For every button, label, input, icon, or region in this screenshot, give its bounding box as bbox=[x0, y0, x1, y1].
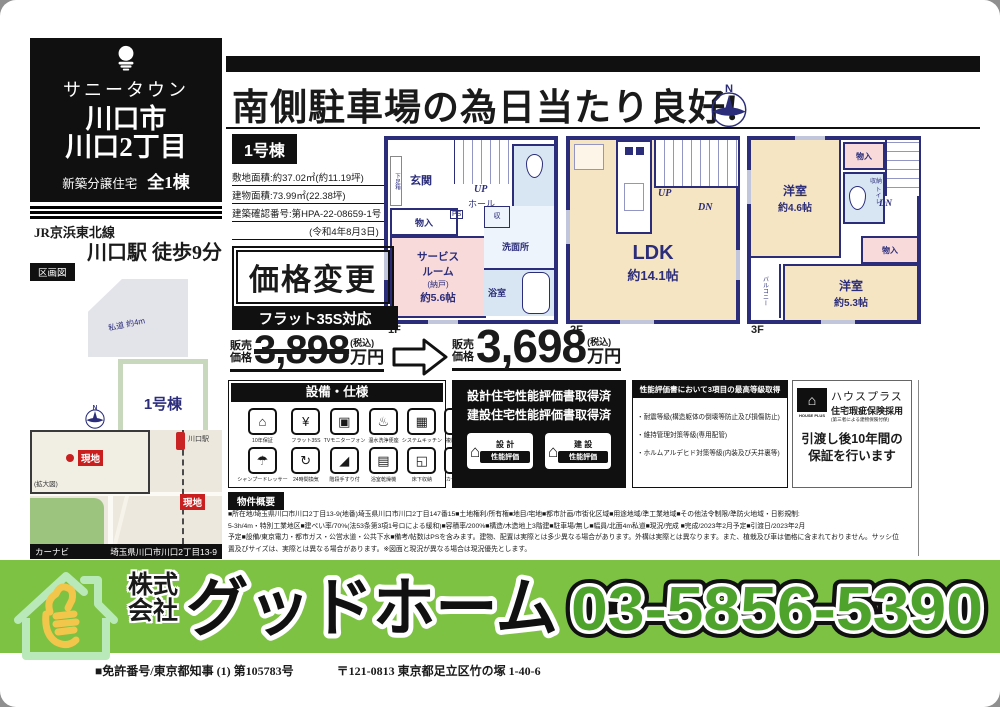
station-access: 川口駅 徒歩9分 bbox=[30, 236, 222, 265]
floorplan-1f: 下足箱 玄関 UP ホール PS 物入 サービス ルーム (納戸) 約5.6帖 … bbox=[384, 136, 558, 324]
shoe-cabinet: 下足箱 bbox=[390, 156, 402, 206]
total-units: 全1棟 bbox=[147, 168, 190, 193]
plot-diagram: 私道 約4m 1号棟 N bbox=[30, 263, 222, 430]
plot-compass-icon: N bbox=[82, 403, 108, 433]
private-road-shape: 私道 約4m bbox=[88, 279, 188, 357]
map-station-label: 川口駅 bbox=[188, 434, 209, 444]
real-estate-flyer: サニータウン 川口市 川口2丁目 新築分譲住宅 全1棟 JR京浜東北線 川口駅 … bbox=[0, 0, 1000, 707]
site-marker: 現地 bbox=[78, 450, 103, 466]
svg-text:グッドホーム: グッドホーム bbox=[186, 572, 558, 644]
bathroom: 浴室 bbox=[484, 268, 554, 316]
toilet-icon bbox=[849, 186, 866, 210]
new-price-amount: 3,698 bbox=[476, 327, 586, 366]
washlet-icon: ♨ bbox=[369, 408, 398, 435]
flat35s-badge: フラット35S対応 bbox=[232, 306, 398, 330]
stairs bbox=[454, 140, 511, 184]
equip-10yr-warranty: ⌂10年保証 bbox=[235, 408, 290, 444]
storage-label: 収納 bbox=[870, 176, 882, 185]
lamp-icon bbox=[112, 45, 140, 71]
grade-maintenance: ・維持管理対策等級(専用配管) bbox=[637, 429, 783, 439]
stairs-down-label: DN bbox=[698, 202, 712, 213]
equip-bath-dryer: ▤浴室乾燥機 bbox=[367, 447, 400, 483]
flat35s-icon: ¥ bbox=[291, 408, 320, 435]
carnavi-address: 埼玉県川口市川口2丁目13-9 bbox=[110, 546, 217, 558]
stove-burner-icon bbox=[636, 147, 644, 155]
washroom: 収 洗面所 bbox=[484, 206, 554, 268]
company-address: 〒121-0813 東京都足立区竹の塚 1-40-6 bbox=[337, 664, 541, 678]
license-number: ■免許番号/東京都知事 (1) 第105783号 bbox=[95, 664, 294, 678]
grade-formaldehyde: ・ホルムアルデヒド対策等級(内装及び天井裏等) bbox=[637, 447, 783, 457]
phone-number: 03-5856-5390 03-5856-5390 bbox=[562, 564, 992, 650]
private-road-label: 私道 約4m bbox=[107, 315, 146, 334]
stairs-up-label: UP bbox=[474, 184, 487, 195]
closet-label: 物入 bbox=[390, 208, 458, 236]
equip-tv-monitor-phone: ▣TVモニターフォン bbox=[322, 408, 367, 444]
old-price: 販売価格 3,898 (税込) 万円 bbox=[230, 333, 384, 372]
equip-washlet: ♨温水洗浄便座 bbox=[367, 408, 400, 444]
ventilation-icon: ↻ bbox=[291, 447, 320, 474]
license-row: ■免許番号/東京都知事 (1) 第105783号 〒121-0813 東京都足立… bbox=[95, 662, 541, 679]
design-cert-line: 設計住宅性能評価書取得済 bbox=[452, 387, 626, 404]
vertical-divider bbox=[918, 380, 919, 556]
entrance-label: 玄関 bbox=[410, 172, 432, 188]
equip-system-kitchen: ▦システムキッチン bbox=[400, 408, 444, 444]
map-inset-label: (拡大図) bbox=[34, 478, 58, 488]
storage-label: 収 bbox=[484, 206, 510, 228]
house-icon: ⌂ bbox=[797, 388, 827, 412]
ldk-label: LDK bbox=[570, 242, 736, 265]
warranty-icon: ⌂ bbox=[248, 408, 277, 435]
certification-box: 設計住宅性能評価書取得済 建設住宅性能評価書取得済 ⌂ 設 計 性能評価 ⌂ 建… bbox=[452, 380, 626, 488]
brand-box: サニータウン 川口市 川口2丁目 新築分譲住宅 全1棟 bbox=[30, 38, 222, 202]
stairs bbox=[654, 140, 738, 188]
house-icon: ⌂ bbox=[470, 443, 480, 460]
floorplan-2f: UP DN LDK 約14.1帖 bbox=[566, 136, 740, 324]
new-price: 販売価格 3,698 (税込) 万円 bbox=[452, 327, 621, 371]
top-grade-title: 性能評価書において3項目の最高等級取得 bbox=[633, 381, 787, 398]
map-station-shape bbox=[176, 432, 185, 450]
kitchen-icon: ▦ bbox=[407, 408, 436, 435]
tv-monitor-icon: ▣ bbox=[330, 408, 359, 435]
stove-burner-icon bbox=[625, 147, 633, 155]
equipment-box: 設備・仕様 ⌂10年保証 ¥フラット35S ▣TVモニターフォン ♨温水洗浄便座… bbox=[228, 380, 446, 488]
construction-cert-line: 建設住宅性能評価書取得済 bbox=[452, 406, 626, 423]
map: 川口駅 現地 現地 (拡大図) bbox=[30, 430, 222, 544]
project-name: サニータウン bbox=[30, 76, 222, 102]
ldk-room: LDK 約14.1帖 bbox=[570, 242, 736, 284]
floorplan-3f: 洋室 約4.6帖 物入 収納 トイレ DN 物入 洋室 約5.3帖 バルコニー bbox=[747, 136, 921, 324]
sink-icon bbox=[624, 183, 644, 211]
washroom-label: 洗面所 bbox=[502, 240, 529, 253]
compass-n: N bbox=[725, 83, 733, 95]
brand-city: 川口市 bbox=[30, 104, 222, 134]
site-marker: 現地 bbox=[180, 494, 205, 510]
svg-text:03-5856-5390: 03-5856-5390 bbox=[571, 575, 983, 644]
closet-label: 物入 bbox=[861, 236, 919, 264]
stairs-icon: ◢ bbox=[330, 447, 359, 474]
shower-icon: ☂ bbox=[248, 447, 277, 474]
balcony: バルコニー bbox=[751, 264, 781, 318]
service-room: サービス ルーム (納戸) 約5.6帖 bbox=[390, 236, 486, 318]
site-dot bbox=[66, 454, 74, 462]
map-inset: 現地 (拡大図) bbox=[30, 430, 150, 494]
construction-cert-badge: ⌂ 建 設 性能評価 bbox=[545, 433, 611, 469]
headline-rule bbox=[226, 127, 980, 129]
house-plus-logo: ⌂ HOUSE PLUS bbox=[797, 388, 827, 418]
arrow-right-icon bbox=[392, 338, 448, 376]
company-prefix: 株式 会社 bbox=[128, 572, 178, 625]
map-park bbox=[30, 498, 104, 544]
svg-text:N: N bbox=[93, 404, 98, 411]
unit-badge: 1号棟 bbox=[232, 134, 297, 164]
bathtub-icon bbox=[522, 272, 550, 314]
top-grade-box: 性能評価書において3項目の最高等級取得 ・耐震等級(構造躯体の倒壊等防止及び損傷… bbox=[632, 380, 788, 488]
toilet-room bbox=[512, 144, 556, 208]
equip-underfloor-storage: ◱床下収納 bbox=[400, 447, 444, 483]
warranty-box: ⌂ HOUSE PLUS ハウスプラス 住宅瑕疵保険採用 (第三者による建物保険… bbox=[792, 380, 912, 488]
bedroom-1: 洋室 約4.6帖 bbox=[751, 140, 841, 258]
carnavi-label: カーナビ bbox=[35, 546, 69, 558]
divider-lines bbox=[30, 206, 222, 219]
overview-text: ■所在地/埼玉県川口市川口2丁目13-9(地番)埼玉県川口市川口2丁目147番1… bbox=[228, 509, 918, 555]
old-price-amount: 3,898 bbox=[254, 333, 349, 367]
headline: 南側駐車場の為日当たり良好! bbox=[232, 77, 739, 131]
stairs-down-label: DN bbox=[879, 198, 892, 208]
bath-label: 浴室 bbox=[488, 286, 506, 299]
equip-stair-handrail: ◢階段手すり付 bbox=[322, 447, 367, 483]
bedroom-2: 洋室 約5.3帖 bbox=[783, 264, 917, 320]
closet bbox=[574, 144, 604, 170]
ldk-size: 約14.1帖 bbox=[570, 265, 736, 284]
equip-flat35s: ¥フラット35S bbox=[290, 408, 322, 444]
equip-shampoo-dresser: ☂シャンプードレッサー bbox=[235, 447, 290, 483]
grade-seismic: ・耐震等級(構造躯体の倒壊等防止及び損傷防止) bbox=[637, 411, 783, 421]
stairs-up-label: UP bbox=[658, 188, 671, 199]
equipment-title: 設備・仕様 bbox=[231, 383, 443, 402]
property-type: 新築分譲住宅 bbox=[62, 173, 137, 192]
floor-label-3f: 3F bbox=[751, 324, 764, 336]
bath-dryer-icon: ▤ bbox=[369, 447, 398, 474]
price-change-badge: 価格変更 bbox=[232, 246, 394, 308]
equip-24h-ventilation: ↻24時間換気 bbox=[290, 447, 322, 483]
brand-district: 川口2丁目 bbox=[30, 134, 222, 161]
stairs bbox=[885, 140, 919, 196]
plot-map-label: 区画図 bbox=[30, 263, 75, 281]
carnavi-bar: カーナビ 埼玉県川口市川口2丁目13-9 bbox=[30, 544, 222, 559]
design-cert-badge: ⌂ 設 計 性能評価 bbox=[467, 433, 533, 469]
compass-icon: N bbox=[706, 80, 752, 132]
top-bar bbox=[226, 56, 980, 72]
house-icon: ⌂ bbox=[548, 443, 558, 460]
company-name: グッドホーム bbox=[178, 560, 566, 654]
toilet-icon bbox=[526, 154, 543, 178]
overview-title: 物件概要 bbox=[228, 492, 284, 510]
kitchen-unit bbox=[616, 140, 652, 234]
closet-label: 物入 bbox=[843, 142, 885, 170]
floor-storage-icon: ◱ bbox=[407, 447, 436, 474]
thumbs-up-house-logo bbox=[10, 562, 122, 662]
